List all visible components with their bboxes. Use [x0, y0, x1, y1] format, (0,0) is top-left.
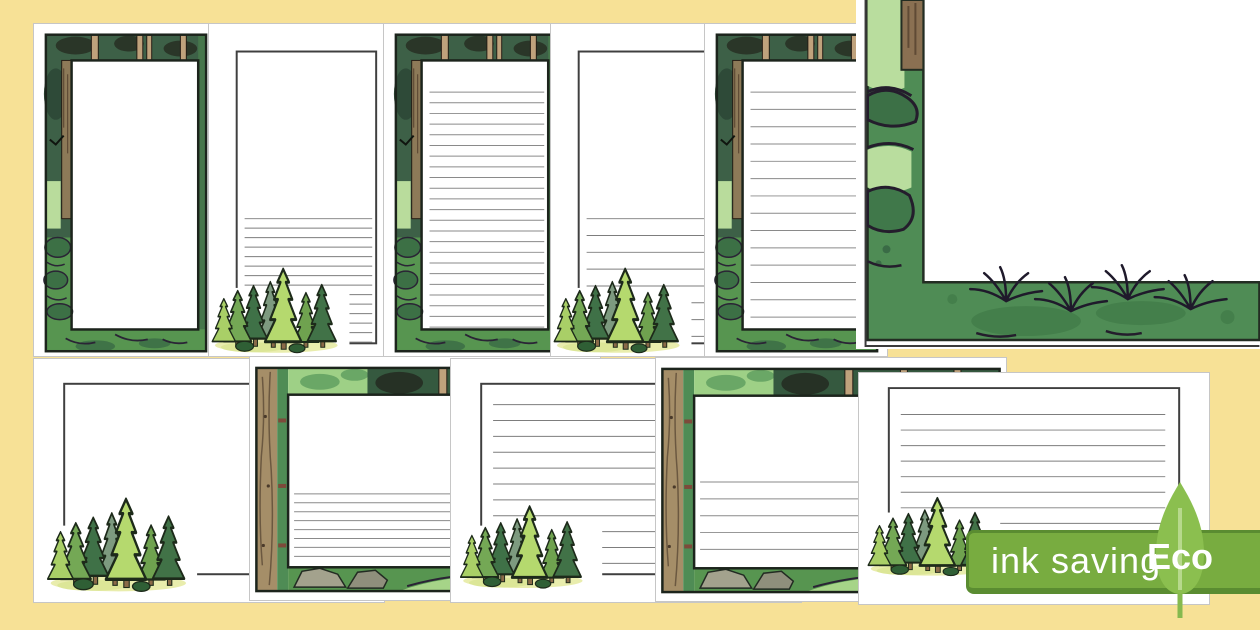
page-portrait-full-border-narrow-lines [383, 23, 567, 357]
forest-page-borders-preview: ink saving Eco [0, 0, 1260, 630]
border-corner-detail-preview [856, 0, 1260, 349]
pine-trees-cluster [48, 499, 186, 591]
forest-border-artwork [34, 24, 216, 356]
page-portrait-full-border-blank [33, 23, 217, 357]
pine-trees-cluster [212, 269, 337, 353]
ink-saving-artwork [209, 24, 391, 356]
ink-saving-label: ink saving [969, 543, 1161, 579]
pine-trees-cluster [461, 507, 583, 588]
page-portrait-ink-saving-lined [208, 23, 392, 357]
border-corner-artwork [856, 0, 1260, 349]
eco-label: Eco [1146, 539, 1214, 575]
ink-saving-badge: ink saving [966, 530, 1260, 594]
pine-trees-cluster [554, 269, 679, 353]
forest-border-artwork [384, 24, 566, 356]
